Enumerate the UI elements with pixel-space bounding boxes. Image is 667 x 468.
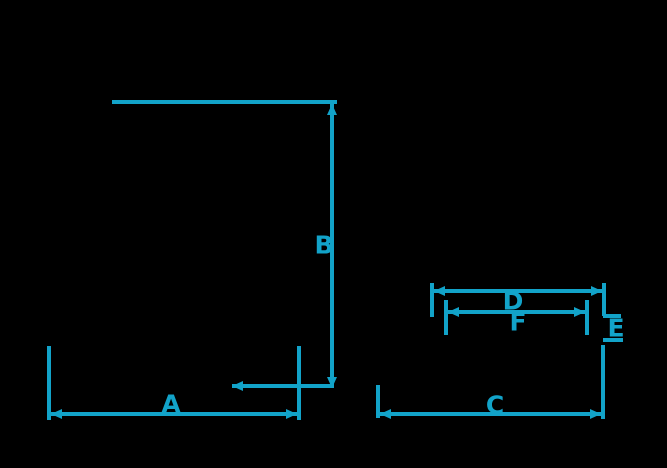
dim-a-label: A [161,392,180,417]
dim-a-arrow-left-icon [51,409,62,419]
dim-d-arrow-right-icon [591,286,602,296]
dim-b-baseline [232,384,334,388]
dim-a-ext-right [297,346,301,420]
dim-f-arrow-left-icon [448,307,459,317]
dim-b-arrow-up-icon [327,104,337,115]
dim-f-label: F [509,310,526,335]
dim-f-ext-right [585,300,589,335]
dim-e-label: E [607,316,624,341]
dim-c-arrow-right-icon [590,409,601,419]
dim-c-label: C [486,393,504,418]
dim-d-ext-right [602,283,606,316]
dim-b-baseline-arrow-icon [232,381,243,391]
dim-d-arrow-left-icon [434,286,445,296]
dim-c-ext-right [601,345,605,419]
dim-f-ext-left [444,300,448,335]
dim-a-arrow-right-icon [286,409,297,419]
dim-f-arrow-right-icon [574,307,585,317]
dimension-diagram: B A C D F E [0,0,667,468]
dim-b-label: B [314,233,333,258]
dim-c-arrow-left-icon [380,409,391,419]
top-reference-line [112,100,337,104]
